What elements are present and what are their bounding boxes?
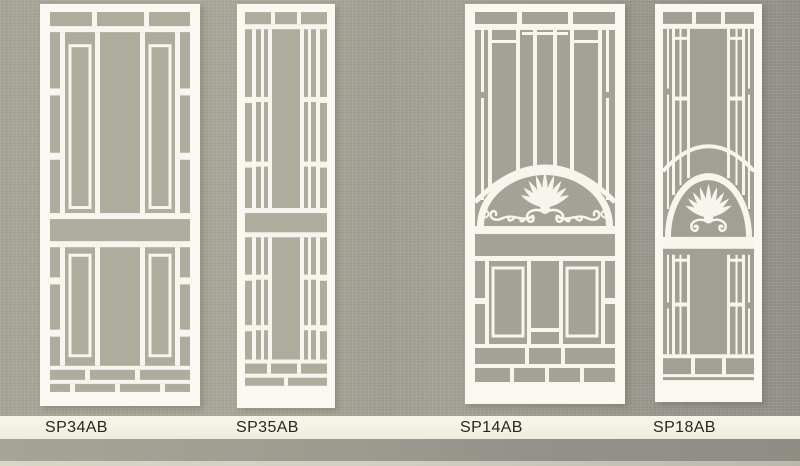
- door-figure-sp14ab: [465, 4, 625, 404]
- door-figure-sp35ab: [237, 4, 335, 408]
- bottom-band: [0, 439, 800, 461]
- product-code-sp34ab: SP34AB: [45, 418, 108, 437]
- door-grille-graphic-sp34ab: [40, 4, 200, 406]
- door-figure-sp34ab: [40, 4, 200, 406]
- door-grille-graphic-sp35ab: [237, 4, 335, 408]
- label-band: SP34AB SP35AB SP14AB SP18AB: [0, 416, 800, 439]
- bottom-edge-stripe: [0, 461, 800, 466]
- door-grille-graphic-sp18ab: [655, 4, 762, 402]
- door-grille-graphic-sp14ab: [465, 4, 625, 404]
- catalog-page: SP34AB SP35AB SP14AB SP18AB: [0, 0, 800, 466]
- product-code-sp18ab: SP18AB: [653, 418, 716, 437]
- product-code-sp35ab: SP35AB: [236, 418, 299, 437]
- door-figure-sp18ab: [655, 4, 762, 402]
- product-code-sp14ab: SP14AB: [460, 418, 523, 437]
